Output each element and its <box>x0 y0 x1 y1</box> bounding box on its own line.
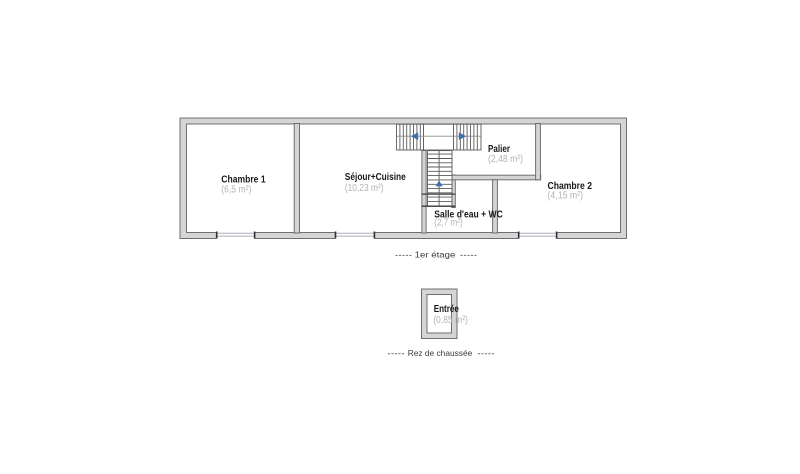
svg-text:Entrée: Entrée <box>434 303 459 315</box>
svg-text:(0,85 m²): (0,85 m²) <box>433 315 468 326</box>
svg-text:-----: ----- <box>478 348 496 358</box>
svg-text:-----: ----- <box>395 250 413 260</box>
svg-text:-----: ----- <box>388 348 406 358</box>
svg-text:Séjour+Cuisine: Séjour+Cuisine <box>345 171 406 183</box>
svg-text:(2,7 m²): (2,7 m²) <box>434 218 462 229</box>
svg-text:-----: ----- <box>460 250 478 260</box>
svg-text:(10,23 m²): (10,23 m²) <box>345 183 384 194</box>
svg-text:1er étage: 1er étage <box>415 249 456 259</box>
svg-text:(4,15 m²): (4,15 m²) <box>548 191 584 202</box>
svg-text:Rez de chaussée: Rez de chaussée <box>408 348 473 358</box>
svg-text:(6,5 m²): (6,5 m²) <box>221 184 251 195</box>
svg-text:(2,48 m²): (2,48 m²) <box>488 154 523 165</box>
